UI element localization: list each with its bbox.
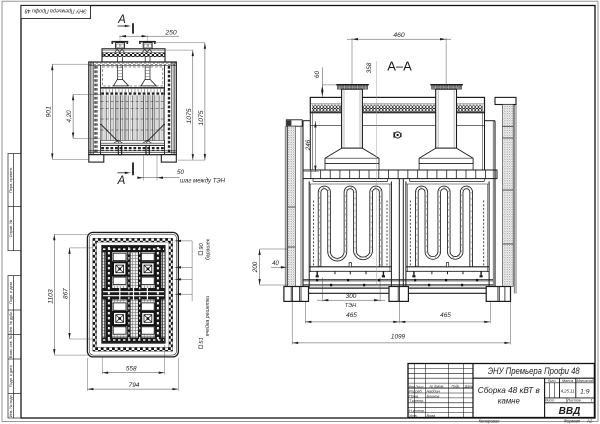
svg-text:Боинов: Боинов [427,394,440,398]
svg-text:40: 40 [272,261,279,267]
svg-text:1075: 1075 [198,110,205,125]
svg-text:Лист: Лист [415,384,424,388]
svg-text:246: 246 [305,139,312,151]
svg-text:Подп.: Подп. [452,384,461,388]
svg-text:4,20: 4,20 [66,110,73,123]
svg-text:794: 794 [129,382,140,389]
svg-text:ТЭН: ТЭН [345,303,357,309]
svg-text:ВВД: ВВД [559,406,581,417]
svg-text:558: 558 [126,366,137,373]
svg-text:Найдин: Найдин [427,389,441,393]
svg-text:ячейка решетки: ячейка решетки [204,296,211,338]
svg-text:51: 51 [199,337,205,343]
svg-text:№ докум.: № докум. [430,384,445,388]
svg-text:1075: 1075 [186,108,193,123]
svg-text:1:9: 1:9 [580,388,590,395]
svg-text:901: 901 [45,106,52,118]
svg-text:1099: 1099 [391,334,406,341]
svg-text:Копировал: Копировал [479,419,500,424]
svg-text:Инв. № подл.: Инв. № подл. [9,394,13,417]
svg-text:Перв. примен.: Перв. примен. [8,167,13,193]
svg-text:465: 465 [346,312,357,319]
svg-text:867: 867 [63,288,70,299]
svg-text:358: 358 [366,62,373,73]
svg-text:Инв. № дубл.: Инв. № дубл. [9,311,13,334]
svg-text:50: 50 [177,169,184,176]
svg-text:шаг между ТЭН: шаг между ТЭН [180,178,226,185]
svg-text:Пров.: Пров. [409,394,419,398]
svg-text:4,25.11: 4,25.11 [561,389,576,394]
svg-text:А: А [117,14,126,26]
svg-text:камне: камне [498,397,521,406]
svg-text:Н.контр.: Н.контр. [409,409,425,413]
svg-text:250: 250 [164,29,177,36]
svg-text:Лист: Лист [544,399,555,403]
svg-text:90: 90 [199,243,205,250]
svg-text:1: 1 [590,399,592,403]
svg-text:барашек: барашек [205,238,211,260]
svg-text:А2: А2 [586,419,593,424]
svg-text:Лит.: Лит. [547,379,557,383]
svg-text:Формат: Формат [564,419,581,424]
svg-text:Дата: Дата [464,384,474,388]
svg-text:А: А [117,175,126,187]
svg-text:Листов: Листов [566,399,581,403]
svg-text:Масса: Масса [562,379,573,383]
svg-text:1103: 1103 [47,289,54,304]
svg-text:Т.контр.: Т.контр. [409,399,424,403]
svg-text:460: 460 [393,32,405,39]
svg-text:Справ. №: Справ. № [8,220,13,238]
svg-text:200: 200 [252,261,259,273]
svg-text:Подп. и дата: Подп. и дата [9,364,13,387]
svg-text:Утв.: Утв. [409,414,418,418]
svg-text:Подп. и дата: Подп. и дата [9,281,13,304]
svg-text:ЭНУ Премьера Профи 48: ЭНУ Премьера Профи 48 [488,366,580,376]
svg-text:300: 300 [346,293,357,300]
svg-text:А–А: А–А [387,59,412,74]
svg-text:Изм.: Изм. [409,384,416,388]
svg-text:Сборка 48 кВТ в: Сборка 48 кВТ в [478,386,540,395]
svg-text:Взам. инв. №: Взам. инв. № [9,335,13,358]
svg-text:Разраб.: Разраб. [409,389,423,393]
svg-text:ЭНУ Премьера Профи 48: ЭНУ Премьера Профи 48 [24,7,87,13]
svg-text:60: 60 [314,71,321,79]
svg-text:465: 465 [440,312,451,319]
svg-text:Вова: Вова [427,414,436,418]
svg-text:Масштаб: Масштаб [576,379,594,383]
